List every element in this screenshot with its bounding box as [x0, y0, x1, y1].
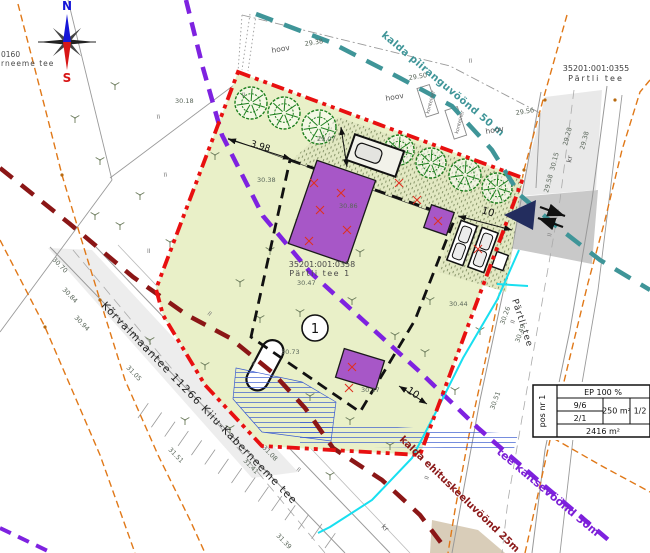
table-ratio-bottom: 2/1 — [574, 414, 587, 423]
tree-icon — [268, 97, 300, 129]
label-road-fragment: rneeme tee — [1, 59, 54, 68]
compass-north-label: N — [62, 0, 72, 13]
tree-icon — [235, 87, 267, 119]
elevation-label: 30.18 — [175, 97, 194, 105]
utility-pole-icon — [60, 173, 63, 176]
fence-tick-icon: II — [147, 248, 151, 255]
elevation-label: 30.44 — [449, 300, 468, 308]
tree-icon — [449, 159, 481, 191]
label-cadastral-fragment: 0160 — [1, 50, 20, 59]
utility-pole-icon — [613, 98, 616, 101]
utility-pole-icon — [43, 325, 46, 328]
site-plan-map: kalda piiranguvöönd 50 mtee kaitsevöönd … — [0, 0, 650, 553]
utility-pole-icon — [522, 168, 525, 171]
site-plan-page: kalda piiranguvöönd 50 mtee kaitsevöönd … — [0, 0, 650, 553]
utility-pole-icon — [98, 298, 101, 301]
compass-south-label: S — [63, 71, 72, 85]
elevation-label: 30.47 — [297, 279, 316, 287]
label-cadastral-0355: 35201:001:0355 — [563, 64, 629, 73]
label-cadastral-0355-name: Pärtli tee — [568, 74, 624, 83]
elevation-label: 30.38 — [257, 176, 276, 184]
plot-number-marker: 1 — [302, 315, 328, 341]
tree-icon — [416, 148, 446, 178]
elevation-label: 30.73 — [281, 348, 300, 356]
elevation-label: 30.17 — [361, 386, 380, 394]
table-building-area: 250 m² — [602, 407, 631, 416]
plot-number-text: 1 — [311, 322, 319, 337]
land-use-table: pos nr 1 EP 100 % 9/6 2/1 250 m² 1/2 241… — [530, 382, 650, 440]
table-plot-area: 2416 m² — [586, 427, 620, 436]
table-storeys: 1/2 — [634, 407, 647, 416]
utility-pole-icon — [543, 98, 546, 101]
table-pos-label: pos nr 1 — [538, 395, 547, 428]
table-ratio-top: 9/6 — [574, 401, 587, 410]
label-cadastral-0358-name: Pärtli tee 1 — [289, 269, 350, 278]
elevation-label: 30.86 — [339, 202, 358, 210]
label-cadastral-0358: 35201:001:0358 — [289, 260, 355, 269]
elevation-label: 29.07 — [317, 135, 336, 143]
table-ep-value: EP 100 % — [584, 388, 622, 397]
